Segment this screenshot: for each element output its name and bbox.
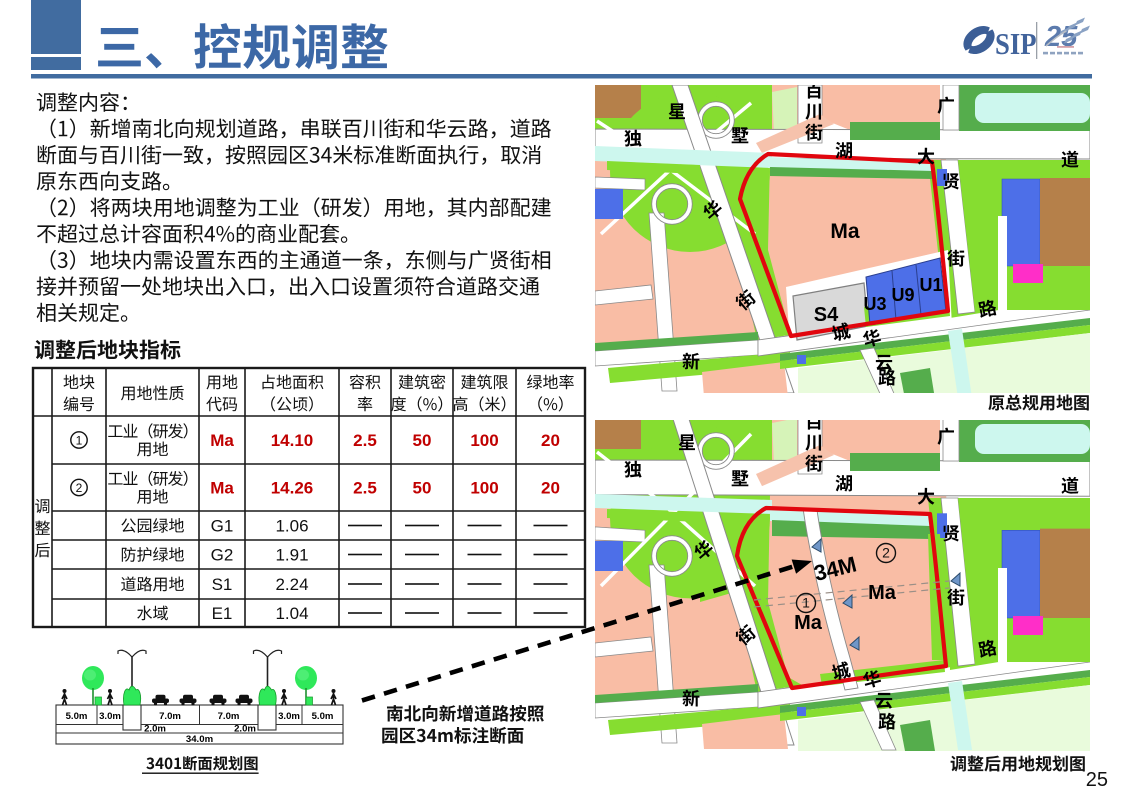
svg-text:U3: U3: [863, 294, 886, 314]
svg-text:34.0m: 34.0m: [186, 734, 213, 745]
svg-text:14.26: 14.26: [271, 479, 314, 498]
svg-text:7.0m: 7.0m: [159, 711, 181, 722]
svg-text:14.10: 14.10: [271, 431, 314, 450]
svg-text:SIP: SIP: [995, 27, 1036, 61]
svg-text:Ma: Ma: [830, 220, 859, 243]
svg-text:2.5: 2.5: [353, 431, 377, 450]
svg-text:2.0m: 2.0m: [234, 724, 256, 735]
svg-text:G1: G1: [211, 517, 234, 536]
svg-text:S4: S4: [814, 304, 839, 326]
svg-text:1: 1: [802, 594, 810, 610]
svg-text:U9: U9: [891, 285, 914, 305]
svg-text:5.0m: 5.0m: [312, 711, 334, 722]
svg-text:3.0m: 3.0m: [278, 711, 300, 722]
svg-text:Ma: Ma: [794, 612, 823, 634]
svg-text:100: 100: [470, 479, 498, 498]
svg-text:Ma: Ma: [868, 582, 897, 604]
svg-text:G2: G2: [211, 546, 234, 565]
svg-text:2: 2: [76, 481, 83, 495]
svg-text:1.91: 1.91: [275, 546, 308, 565]
svg-text:E1: E1: [212, 604, 233, 623]
svg-text:50: 50: [413, 479, 432, 498]
svg-text:2.24: 2.24: [275, 575, 308, 594]
svg-text:5.0m: 5.0m: [66, 711, 88, 722]
svg-text:20: 20: [541, 479, 560, 498]
svg-text:20: 20: [541, 431, 560, 450]
svg-text:2: 2: [882, 544, 890, 560]
svg-text:2.5: 2.5: [353, 479, 377, 498]
svg-text:7.0m: 7.0m: [218, 711, 240, 722]
svg-text:100: 100: [470, 431, 498, 450]
svg-text:S1: S1: [212, 575, 233, 594]
svg-text:50: 50: [413, 431, 432, 450]
svg-text:3.0m: 3.0m: [99, 711, 121, 722]
svg-text:1.04: 1.04: [275, 604, 308, 623]
svg-text:2.0m: 2.0m: [144, 724, 166, 735]
svg-text:1: 1: [76, 433, 83, 447]
svg-text:Ma: Ma: [210, 431, 234, 450]
svg-text:U1: U1: [919, 275, 942, 295]
svg-text:25: 25: [1086, 769, 1108, 791]
svg-text:1.06: 1.06: [275, 517, 308, 536]
svg-text:Ma: Ma: [210, 479, 234, 498]
